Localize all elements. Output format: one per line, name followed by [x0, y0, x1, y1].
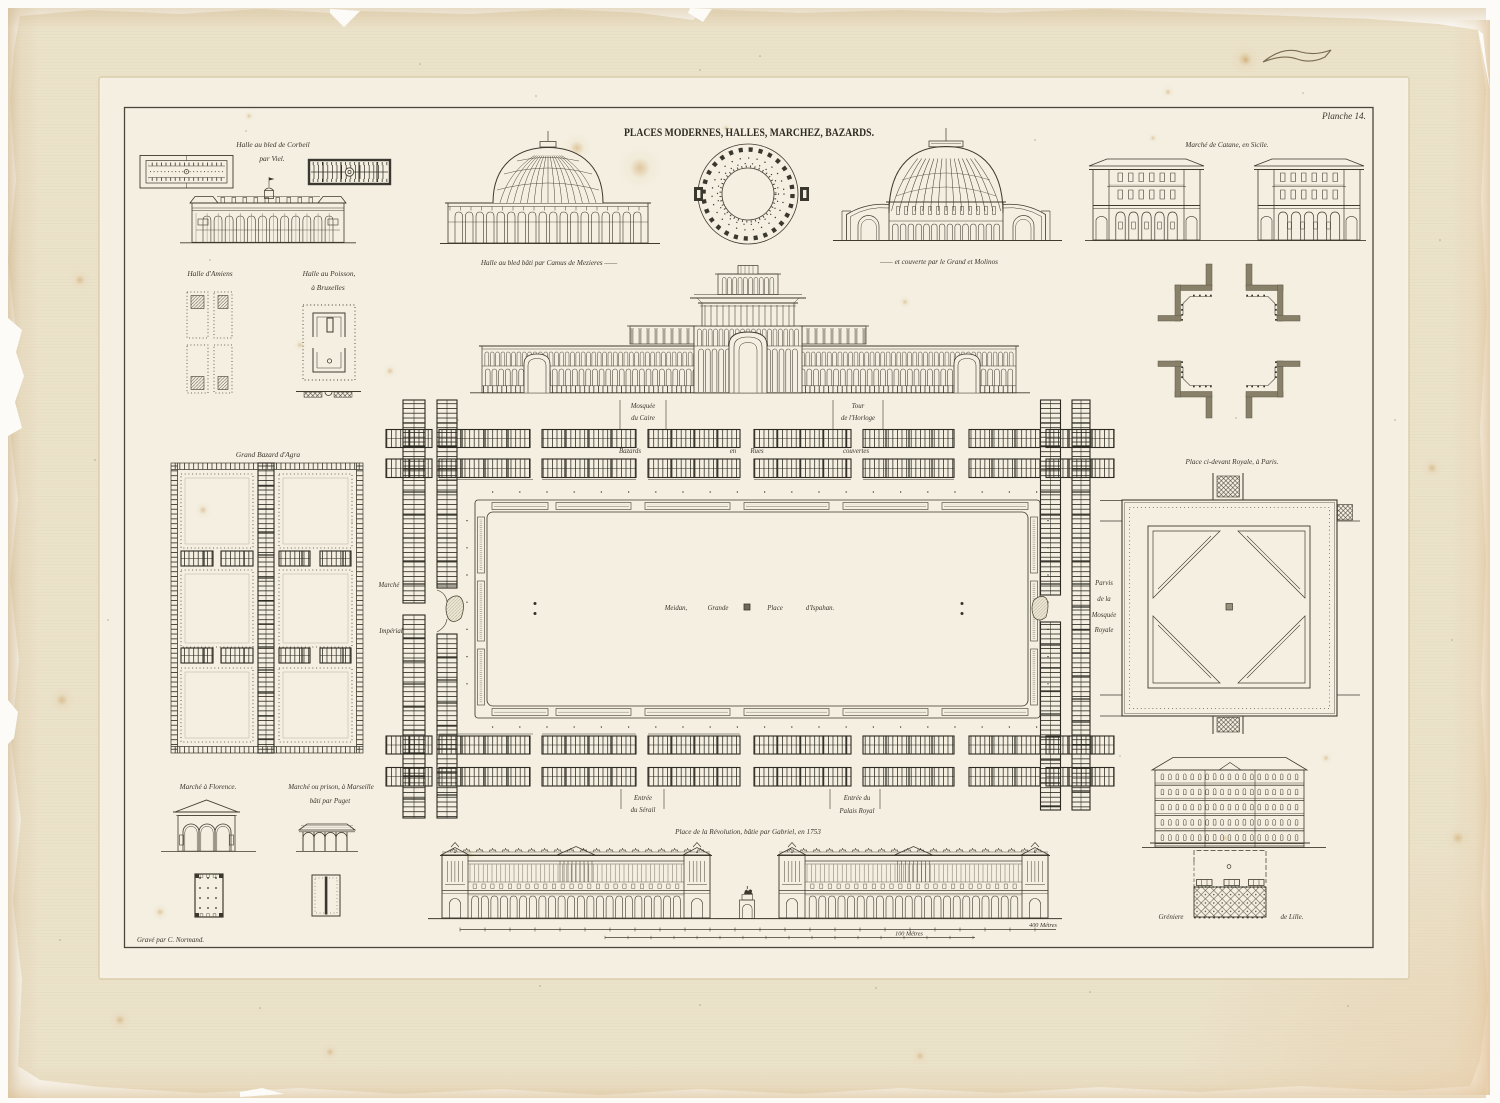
svg-text:Entrée du: Entrée du: [843, 795, 871, 802]
svg-text:Tour: Tour: [852, 403, 865, 410]
svg-text:Place ci-devant Royale, à Pari: Place ci-devant Royale, à Paris.: [1184, 458, 1278, 466]
svg-text:de Lille.: de Lille.: [1281, 913, 1304, 921]
svg-text:Marché à Florence.: Marché à Florence.: [179, 783, 237, 791]
svg-text:100 Métres: 100 Métres: [895, 931, 923, 938]
svg-text:Mosquée: Mosquée: [630, 403, 656, 410]
svg-text:Entrée: Entrée: [633, 795, 652, 802]
svg-text:Gréniere: Gréniere: [1158, 913, 1183, 921]
svg-text:du Caire: du Caire: [631, 415, 655, 422]
svg-text:Marché: Marché: [378, 582, 401, 589]
svg-text:Halle au bled bâti par Camus d: Halle au bled bâti par Camus de Mezieres…: [480, 259, 618, 267]
svg-text:de l'Horloge: de l'Horloge: [841, 415, 875, 422]
svg-text:Place de la Révolution, bâtie: Place de la Révolution, bâtie par Gabrie…: [674, 828, 821, 836]
svg-text:par Viel.: par Viel.: [258, 154, 284, 163]
svg-text:PLACES MODERNES, HALLES, MARCH: PLACES MODERNES, HALLES, MARCHEZ, BAZARD…: [624, 126, 874, 139]
svg-text:Place: Place: [766, 605, 782, 612]
svg-text:couvertes: couvertes: [843, 448, 869, 455]
svg-text:Impérial: Impérial: [378, 628, 403, 635]
svg-text:Parvis: Parvis: [1094, 580, 1113, 587]
svg-text:400 Métres: 400 Métres: [1029, 922, 1057, 929]
svg-text:d'Ispahan.: d'Ispahan.: [806, 605, 835, 612]
svg-text:bâti par Puget: bâti par Puget: [310, 797, 351, 805]
svg-text:Gravé par C. Normand.: Gravé par C. Normand.: [137, 936, 204, 944]
svg-text:Marché ou prison, à Marseille: Marché ou prison, à Marseille: [287, 783, 373, 791]
svg-text:Palais Royal: Palais Royal: [839, 808, 875, 815]
svg-text:à Bruxelles: à Bruxelles: [311, 283, 345, 292]
svg-text:Meidan,: Meidan,: [664, 605, 688, 612]
svg-text:Grande: Grande: [708, 605, 729, 612]
svg-text:Halle au Poisson,: Halle au Poisson,: [302, 269, 356, 278]
svg-text:Halle d'Amiens: Halle d'Amiens: [186, 269, 232, 278]
svg-text:en: en: [730, 448, 737, 455]
svg-text:—— et couverte par le Grand et: —— et couverte par le Grand et Molinos: [879, 258, 998, 266]
svg-text:du Sérail: du Sérail: [631, 807, 656, 814]
svg-text:Planche 14.: Planche 14.: [1321, 111, 1366, 121]
svg-text:Bazards: Bazards: [619, 448, 641, 455]
svg-text:Grand Bazard d'Agra: Grand Bazard d'Agra: [236, 450, 300, 459]
svg-text:Marché de Catane, en Sicile.: Marché de Catane, en Sicile.: [1184, 141, 1268, 149]
svg-text:Mosquée: Mosquée: [1091, 612, 1117, 619]
svg-text:Royale: Royale: [1094, 627, 1114, 634]
svg-text:de la: de la: [1097, 596, 1111, 603]
svg-text:Rues: Rues: [749, 448, 764, 455]
svg-text:Halle au bled de Corbeil: Halle au bled de Corbeil: [235, 140, 309, 149]
